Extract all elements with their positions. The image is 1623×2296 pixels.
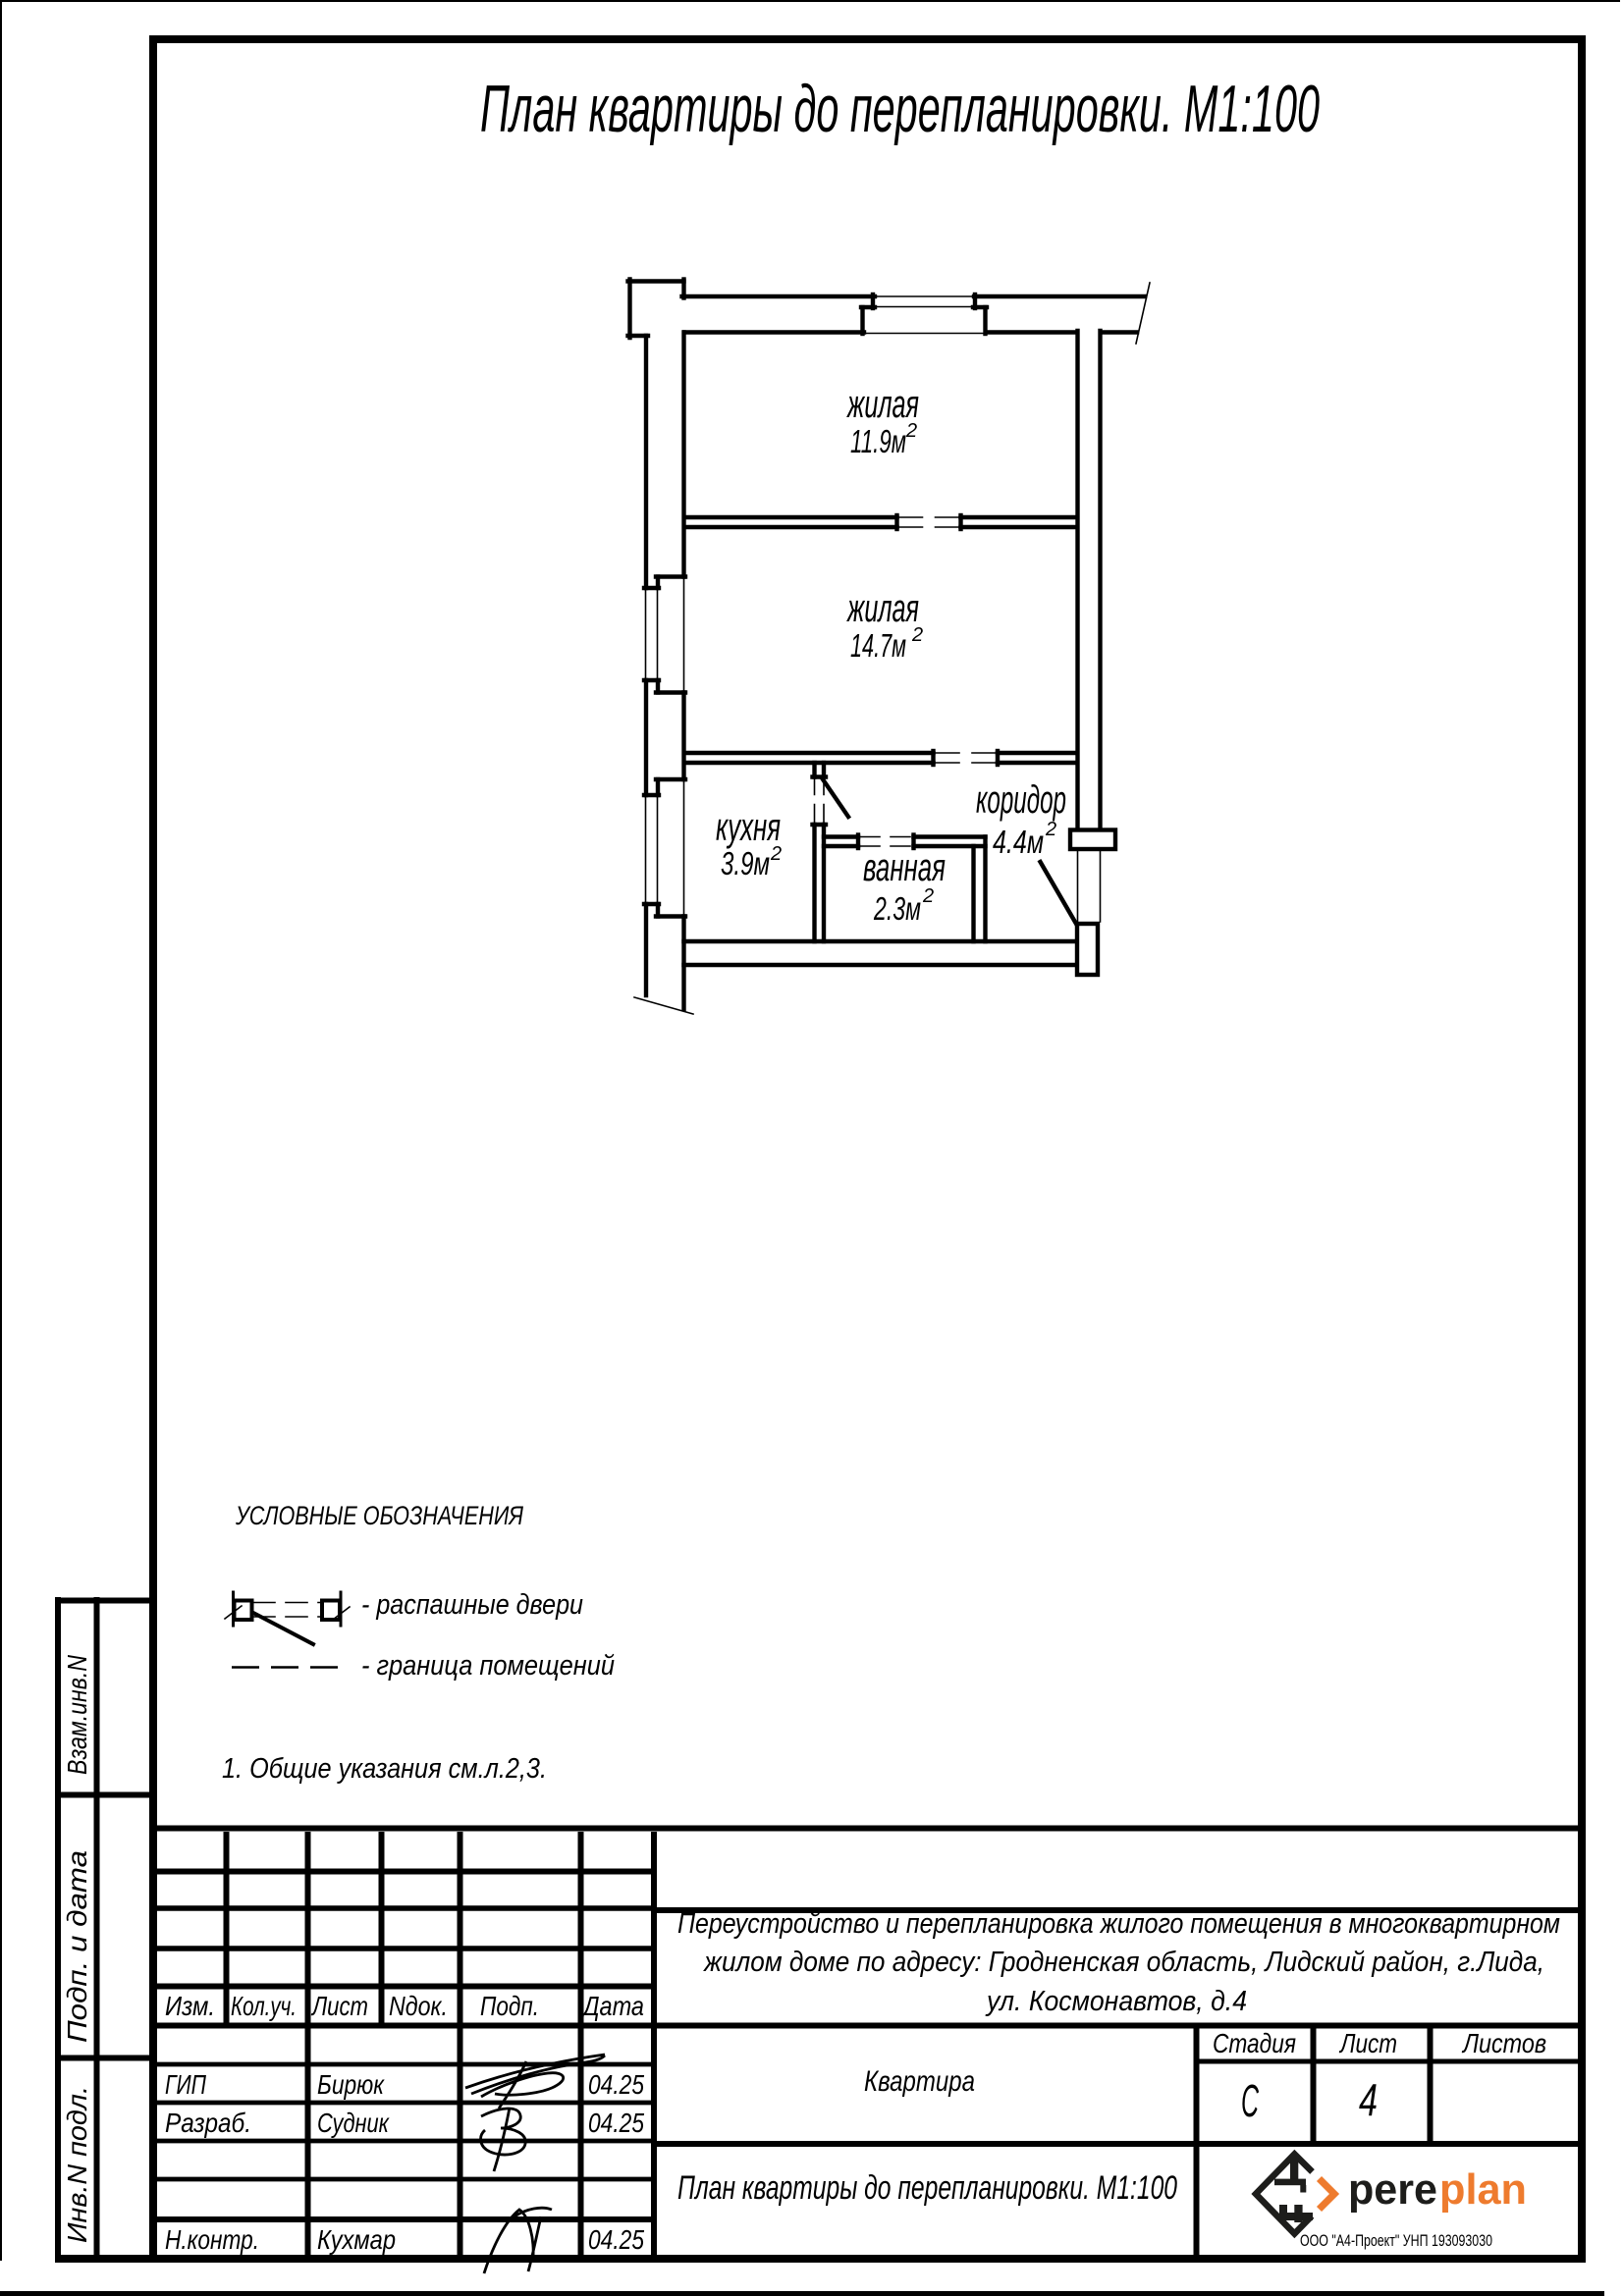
svg-text:11.9м: 11.9м bbox=[850, 423, 906, 459]
svg-text:Лист: Лист bbox=[310, 1991, 368, 2021]
svg-text:ООО "А4-Проект" УНП 193093030: ООО "А4-Проект" УНП 193093030 bbox=[1300, 2231, 1492, 2250]
svg-text:Подп.: Подп. bbox=[480, 1991, 539, 2021]
svg-text:2: 2 bbox=[905, 420, 917, 442]
svg-text:ул. Космонавтов, д.4: ул. Космонавтов, д.4 bbox=[985, 1986, 1247, 2017]
svg-text:04.25: 04.25 bbox=[588, 2224, 644, 2255]
svg-text:2: 2 bbox=[911, 624, 923, 646]
svg-text:Изм.: Изм. bbox=[165, 1991, 215, 2021]
svg-text:Nдок.: Nдок. bbox=[389, 1991, 448, 2021]
svg-text:жилом доме по адресу: Гродненс: жилом доме по адресу: Гродненская област… bbox=[702, 1947, 1544, 1978]
svg-text:Взам.инв.N: Взам.инв.N bbox=[62, 1654, 92, 1775]
svg-text:2: 2 bbox=[922, 885, 934, 907]
svg-text:Кухмар: Кухмар bbox=[317, 2224, 396, 2255]
svg-text:УСЛОВНЫЕ ОБОЗНАЧЕНИЯ: УСЛОВНЫЕ ОБОЗНАЧЕНИЯ bbox=[235, 1501, 523, 1530]
svg-text:Разраб.: Разраб. bbox=[165, 2108, 251, 2138]
svg-text:pere: pere bbox=[1348, 2165, 1437, 2214]
svg-text:Стадия: Стадия bbox=[1213, 2028, 1296, 2058]
svg-text:Н.контр.: Н.контр. bbox=[165, 2224, 259, 2255]
svg-text:04.25: 04.25 bbox=[588, 2108, 644, 2138]
svg-text:Лист: Лист bbox=[1338, 2028, 1397, 2058]
svg-text:2.3м: 2.3м bbox=[873, 890, 921, 927]
svg-text:3.9м: 3.9м bbox=[721, 845, 770, 881]
svg-text:Дата: Дата bbox=[580, 1991, 644, 2021]
svg-text:План квартиры до перепланировк: План квартиры до перепланировки. М1:100 bbox=[480, 72, 1320, 146]
svg-text:ванная: ванная bbox=[863, 846, 946, 889]
svg-text:4.4м: 4.4м bbox=[993, 824, 1044, 860]
svg-text:- граница помещений: - граница помещений bbox=[361, 1650, 615, 1682]
svg-text:14.7м: 14.7м bbox=[850, 627, 906, 664]
svg-text:Инв.N подл.: Инв.N подл. bbox=[62, 2086, 92, 2243]
svg-text:Квартира: Квартира bbox=[864, 2065, 975, 2098]
svg-text:Подп. и дата: Подп. и дата bbox=[62, 1850, 92, 2043]
svg-text:Листов: Листов bbox=[1461, 2028, 1546, 2058]
svg-text:жилая: жилая bbox=[846, 587, 919, 630]
svg-text:plan: plan bbox=[1439, 2165, 1527, 2214]
svg-text:2: 2 bbox=[1045, 819, 1056, 840]
svg-text:1. Общие указания см.л.2,3.: 1. Общие указания см.л.2,3. bbox=[222, 1753, 547, 1785]
svg-text:План квартиры до перепланировк: План квартиры до перепланировки. М1:100 bbox=[677, 2169, 1177, 2207]
svg-text:Бирюк: Бирюк bbox=[317, 2069, 385, 2100]
svg-text:Кол.уч.: Кол.уч. bbox=[231, 1991, 297, 2021]
svg-text:Судник: Судник bbox=[317, 2108, 390, 2138]
svg-text:коридор: коридор bbox=[976, 778, 1066, 822]
svg-text:ГИП: ГИП bbox=[165, 2069, 207, 2100]
svg-text:04.25: 04.25 bbox=[588, 2069, 644, 2100]
svg-text:- распашные двери: - распашные двери bbox=[361, 1589, 583, 1621]
svg-text:4: 4 bbox=[1359, 2074, 1378, 2125]
svg-text:2: 2 bbox=[770, 843, 782, 865]
svg-text:Переустройство и перепланировк: Переустройство и перепланировка жилого п… bbox=[677, 1908, 1560, 1940]
svg-text:С: С bbox=[1241, 2075, 1259, 2126]
